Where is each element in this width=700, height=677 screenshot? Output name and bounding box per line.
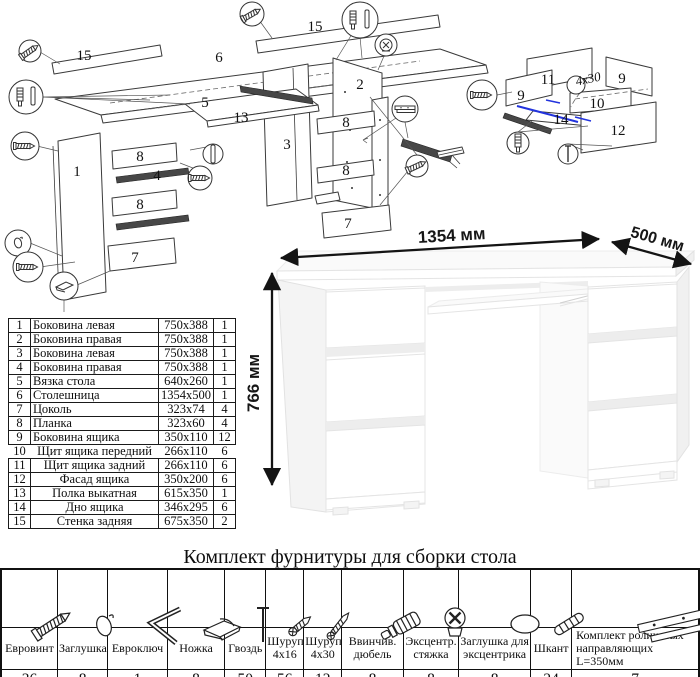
part-qty: 1	[214, 333, 236, 347]
hardware-qty: 8	[57, 669, 107, 677]
table-row: 7Цоколь323x744	[9, 403, 236, 417]
part-row-num: 1	[9, 319, 31, 333]
table-row: 8Планка323x604	[9, 417, 236, 431]
part-size: 675x350	[159, 515, 214, 529]
hardware-qty: 8	[459, 669, 531, 677]
table-row: 15Стенка задняя675x3502	[9, 515, 236, 529]
part-name: Боковина ящика	[31, 431, 159, 445]
part-name: Вязка стола	[31, 375, 159, 389]
part-label: 14	[554, 112, 570, 128]
part-qty: 6	[214, 445, 236, 459]
part-label: 9	[618, 71, 626, 87]
hardware-qty: 8	[342, 669, 404, 677]
table-row: 1Боковина левая750x3881	[9, 319, 236, 333]
desk-illustration	[277, 251, 694, 515]
part-label: 8	[342, 115, 350, 131]
part-row-num: 11	[9, 459, 31, 473]
drawer-rail-icon	[635, 599, 699, 628]
part-row-num: 4	[9, 361, 31, 375]
part-qty: 1	[214, 375, 236, 389]
hardware-icon-row	[1, 569, 699, 628]
part-size: 750x388	[159, 319, 214, 333]
hardware-qty: 8	[403, 669, 458, 677]
part-row-num: 3	[9, 347, 31, 361]
wood-dowel-icon	[551, 599, 572, 628]
screw-long-icon	[323, 599, 342, 628]
part-size: 750x388	[159, 347, 214, 361]
cap-icon	[83, 599, 108, 628]
part-size: 750x388	[159, 361, 214, 375]
hardware-qty-row: 36 8 1 8 50 56 12 8 8 8 24 7	[1, 669, 699, 677]
part-size: 266x110	[159, 459, 214, 473]
part-name: Стенка задняя	[31, 515, 159, 529]
euro-screw-icon	[29, 599, 57, 628]
hex-key-icon	[138, 599, 168, 628]
part-size: 750x388	[159, 333, 214, 347]
part-qty: 1	[214, 487, 236, 501]
part-name: Щит ящика задний	[31, 459, 159, 473]
part-size: 323x60	[159, 417, 214, 431]
part-row-num: 15	[9, 515, 31, 529]
part-label: 8	[136, 149, 144, 165]
part-label: 11	[541, 72, 555, 88]
hardware-qty: 36	[1, 669, 57, 677]
part-qty: 6	[214, 501, 236, 515]
foot-icon	[196, 599, 225, 628]
part-label: 6	[215, 50, 223, 66]
height-dimension-label: 766 мм	[244, 354, 263, 412]
part-row-num: 7	[9, 403, 31, 417]
hardware-icon-cell	[572, 569, 699, 628]
nail-icon	[245, 599, 266, 628]
part-size: 346x295	[159, 501, 214, 515]
hardware-qty: 56	[266, 669, 304, 677]
part-row-num: 12	[9, 473, 31, 487]
hardware-qty: 12	[304, 669, 342, 677]
hardware-qty: 8	[167, 669, 224, 677]
threaded-dowel-icon	[373, 599, 404, 628]
part-qty: 1	[214, 319, 236, 333]
part-qty: 1	[214, 389, 236, 403]
hardware-kit-section: Комплект фурнитуры для сборки стола	[0, 546, 700, 677]
part-name: Фасад ящика	[31, 473, 159, 487]
part-size: 350x110	[159, 431, 214, 445]
part-label: 9	[517, 88, 525, 104]
table-row: 10Щит ящика передний266x1106	[9, 445, 236, 459]
part-name: Щит ящика передний	[31, 445, 159, 459]
cam-cap-icon	[495, 599, 531, 628]
part-qty: 2	[214, 515, 236, 529]
part-name: Боковина правая	[31, 333, 159, 347]
part-qty: 1	[214, 347, 236, 361]
cam-lock-icon	[431, 599, 459, 628]
part-name: Боковина левая	[31, 319, 159, 333]
assembly-instruction-sheet: 15 6 15 5 13 2 3 1 8 4 8 7 8 8 7	[0, 0, 700, 677]
table-row: 3Боковина левая750x3881	[9, 347, 236, 361]
part-qty: 1	[214, 361, 236, 375]
part-label: 15	[77, 48, 92, 64]
part-qty: 4	[214, 403, 236, 417]
desk-dimensions-render: 1354 мм 500 мм 766 мм	[240, 215, 700, 552]
part-row-num: 9	[9, 431, 31, 445]
part-name: Боковина правая	[31, 361, 159, 375]
part-qty: 6	[214, 473, 236, 487]
hardware-qty: 1	[108, 669, 168, 677]
part-label: 5	[201, 95, 209, 111]
part-label: 13	[234, 110, 249, 126]
part-label: 8	[342, 163, 350, 179]
width-dimension-label: 1354 мм	[417, 224, 486, 247]
part-name: Планка	[31, 417, 159, 431]
part-name: Дно ящика	[31, 501, 159, 515]
part-label: 10	[590, 96, 605, 112]
part-label: 4	[153, 168, 161, 184]
part-label: 1	[73, 164, 81, 180]
part-label: 8	[136, 197, 144, 213]
table-row: 4Боковина правая750x3881	[9, 361, 236, 375]
part-row-num: 2	[9, 333, 31, 347]
part-qty: 12	[214, 431, 236, 445]
part-size: 350x200	[159, 473, 214, 487]
part-row-num: 5	[9, 375, 31, 389]
hardware-qty: 7	[572, 669, 699, 677]
part-name: Боковина левая	[31, 347, 159, 361]
part-label: 12	[611, 123, 626, 139]
part-row-num: 13	[9, 487, 31, 501]
table-row: 14Дно ящика346x2956	[9, 501, 236, 515]
part-row-num: 14	[9, 501, 31, 515]
table-row: 9Боковина ящика350x11012	[9, 431, 236, 445]
part-size: 323x74	[159, 403, 214, 417]
screw-short-icon	[285, 599, 304, 628]
table-row: 2Боковина правая750x3881	[9, 333, 236, 347]
table-row: 6Столешница1354x5001	[9, 389, 236, 403]
part-name: Столешница	[31, 389, 159, 403]
part-size: 615x350	[159, 487, 214, 501]
table-row: 5Вязка стола640x2601	[9, 375, 236, 389]
table-row: 12Фасад ящика350x2006	[9, 473, 236, 487]
hardware-icon-cell	[1, 569, 57, 628]
hardware-kit-title: Комплект фурнитуры для сборки стола	[0, 546, 700, 568]
part-row-num: 8	[9, 417, 31, 431]
table-row: 13Полка выкатная615x3501	[9, 487, 236, 501]
part-qty: 4	[214, 417, 236, 431]
part-label: 7	[131, 250, 139, 266]
part-qty: 6	[214, 459, 236, 473]
part-size: 266x110	[159, 445, 214, 459]
part-label: 2	[356, 77, 364, 93]
part-name: Цоколь	[31, 403, 159, 417]
part-name: Полка выкатная	[31, 487, 159, 501]
part-label: 15	[308, 19, 323, 35]
parts-table: 1Боковина левая750x3881 2Боковина правая…	[8, 318, 236, 529]
part-row-num: 6	[9, 389, 31, 403]
hardware-qty: 50	[225, 669, 266, 677]
part-size: 640x260	[159, 375, 214, 389]
part-size: 1354x500	[159, 389, 214, 403]
hardware-qty: 24	[531, 669, 572, 677]
table-row: 11Щит ящика задний266x1106	[9, 459, 236, 473]
hardware-table: Евровинт Заглушка Евроключ Ножка Гвоздь …	[0, 568, 700, 677]
part-row-num: 10	[9, 445, 31, 459]
part-label: 3	[283, 137, 291, 153]
